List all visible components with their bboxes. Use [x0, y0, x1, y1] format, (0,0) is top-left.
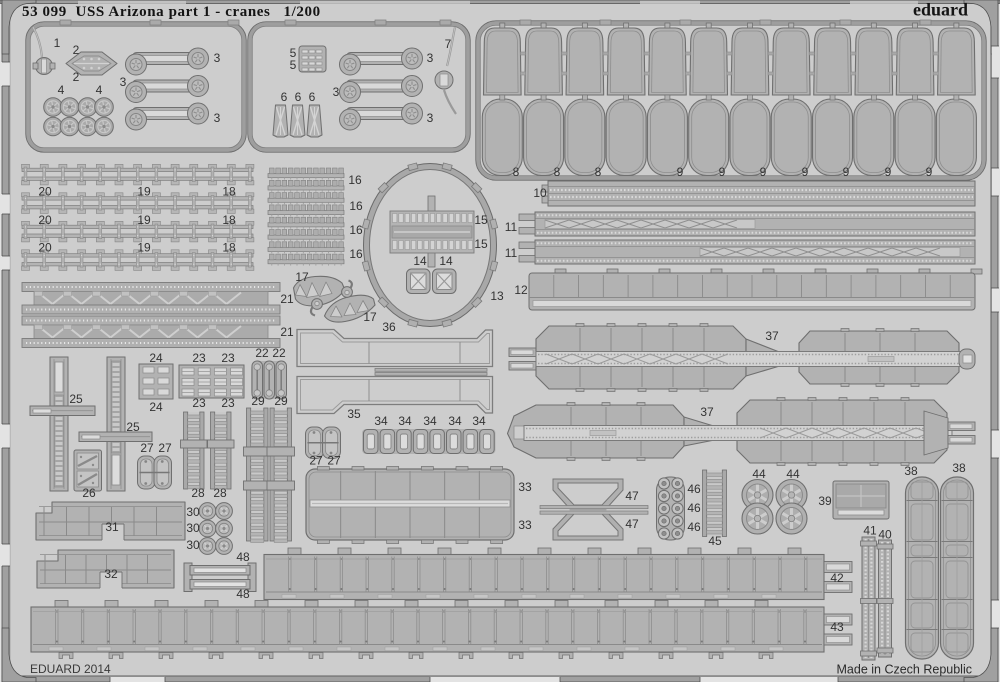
svg-text:22: 22 [272, 346, 286, 360]
svg-text:44: 44 [752, 467, 766, 481]
svg-text:4: 4 [96, 83, 103, 97]
svg-text:16: 16 [349, 247, 363, 261]
svg-text:38: 38 [904, 464, 918, 478]
svg-text:3: 3 [120, 75, 127, 89]
svg-text:44: 44 [786, 467, 800, 481]
svg-text:27: 27 [327, 454, 341, 468]
svg-text:40: 40 [878, 528, 892, 542]
svg-text:2: 2 [73, 70, 80, 84]
svg-text:30: 30 [186, 521, 200, 535]
svg-text:22: 22 [255, 346, 269, 360]
svg-text:21: 21 [280, 292, 294, 306]
svg-text:23: 23 [192, 396, 206, 410]
svg-text:13: 13 [490, 289, 504, 303]
svg-text:9: 9 [677, 165, 684, 179]
svg-text:24: 24 [149, 400, 163, 414]
svg-text:3: 3 [427, 51, 434, 65]
svg-text:18: 18 [222, 185, 236, 199]
svg-text:47: 47 [625, 517, 639, 531]
svg-text:18: 18 [222, 241, 236, 255]
svg-text:34: 34 [448, 414, 462, 428]
svg-text:8: 8 [595, 165, 602, 179]
svg-text:43: 43 [830, 620, 844, 634]
svg-text:45: 45 [708, 534, 722, 548]
svg-text:10: 10 [533, 186, 547, 200]
svg-text:38: 38 [952, 461, 966, 475]
svg-text:28: 28 [213, 486, 227, 500]
svg-text:9: 9 [885, 165, 892, 179]
svg-text:9: 9 [802, 165, 809, 179]
svg-text:19: 19 [137, 213, 151, 227]
svg-text:23: 23 [221, 351, 235, 365]
svg-text:31: 31 [105, 520, 119, 534]
svg-text:48: 48 [236, 587, 250, 601]
svg-text:6: 6 [309, 90, 316, 104]
svg-text:34: 34 [472, 414, 486, 428]
svg-text:27: 27 [140, 441, 154, 455]
svg-text:53 099 USS Arizona part 1 - c: 53 099 USS Arizona part 1 - cranes 1/200 [22, 4, 321, 20]
svg-text:12: 12 [514, 283, 528, 297]
svg-text:29: 29 [251, 394, 265, 408]
svg-text:14: 14 [439, 254, 453, 268]
svg-text:1: 1 [54, 36, 61, 50]
svg-text:27: 27 [309, 454, 323, 468]
svg-text:28: 28 [191, 486, 205, 500]
svg-text:42: 42 [830, 571, 844, 585]
svg-text:41: 41 [863, 524, 877, 538]
svg-text:8: 8 [513, 165, 520, 179]
svg-text:30: 30 [186, 538, 200, 552]
svg-text:3: 3 [214, 111, 221, 125]
svg-text:20: 20 [38, 185, 52, 199]
svg-text:27: 27 [158, 441, 172, 455]
svg-text:eduard: eduard [913, 0, 968, 20]
svg-text:47: 47 [625, 489, 639, 503]
svg-text:11: 11 [505, 246, 518, 260]
svg-text:6: 6 [281, 90, 288, 104]
svg-text:32: 32 [104, 567, 118, 581]
svg-text:8: 8 [554, 165, 561, 179]
svg-text:9: 9 [926, 165, 933, 179]
svg-text:34: 34 [374, 414, 388, 428]
svg-text:3: 3 [214, 51, 221, 65]
svg-text:3: 3 [427, 111, 434, 125]
svg-text:29: 29 [274, 394, 288, 408]
svg-text:16: 16 [349, 223, 363, 237]
svg-text:26: 26 [82, 486, 96, 500]
svg-text:EDUARD 2014: EDUARD 2014 [30, 662, 111, 676]
svg-text:9: 9 [760, 165, 767, 179]
svg-text:16: 16 [348, 173, 362, 187]
svg-text:14: 14 [413, 254, 427, 268]
svg-text:2: 2 [73, 43, 80, 57]
svg-text:4: 4 [58, 83, 65, 97]
svg-text:24: 24 [149, 351, 163, 365]
svg-text:6: 6 [295, 90, 302, 104]
svg-text:7: 7 [445, 37, 452, 51]
svg-text:15: 15 [474, 213, 488, 227]
svg-text:18: 18 [222, 213, 236, 227]
svg-text:30: 30 [186, 505, 200, 519]
svg-text:33: 33 [518, 518, 532, 532]
svg-text:37: 37 [765, 329, 779, 343]
svg-text:25: 25 [126, 420, 140, 434]
svg-text:39: 39 [818, 494, 832, 508]
svg-text:15: 15 [474, 237, 488, 251]
svg-text:3: 3 [333, 85, 340, 99]
svg-text:19: 19 [137, 185, 151, 199]
svg-text:16: 16 [349, 199, 363, 213]
svg-text:33: 33 [518, 480, 532, 494]
svg-text:34: 34 [398, 414, 412, 428]
svg-text:20: 20 [38, 241, 52, 255]
svg-text:17: 17 [363, 310, 377, 324]
svg-text:34: 34 [423, 414, 437, 428]
svg-text:19: 19 [137, 241, 151, 255]
svg-text:23: 23 [192, 351, 206, 365]
svg-text:9: 9 [719, 165, 726, 179]
svg-text:23: 23 [221, 396, 235, 410]
svg-text:25: 25 [69, 392, 83, 406]
svg-text:48: 48 [236, 550, 250, 564]
svg-text:5: 5 [290, 58, 297, 72]
svg-text:46: 46 [687, 482, 701, 496]
svg-text:21: 21 [280, 325, 294, 339]
svg-text:Made in Czech Republic: Made in Czech Republic [837, 663, 973, 677]
svg-text:46: 46 [687, 520, 701, 534]
svg-text:36: 36 [382, 320, 396, 334]
svg-text:17: 17 [295, 270, 309, 284]
svg-text:11: 11 [505, 220, 518, 234]
svg-text:46: 46 [687, 501, 701, 515]
svg-text:35: 35 [347, 407, 361, 421]
svg-text:9: 9 [843, 165, 850, 179]
svg-text:37: 37 [700, 405, 714, 419]
svg-text:20: 20 [38, 213, 52, 227]
